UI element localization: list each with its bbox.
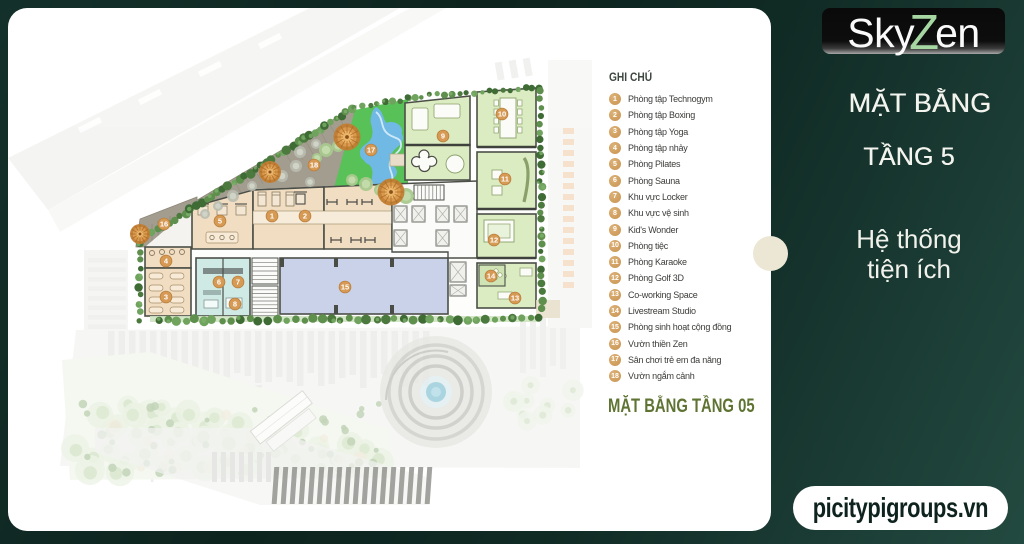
svg-text:17: 17: [367, 146, 375, 155]
svg-text:3: 3: [164, 293, 168, 302]
svg-text:13: 13: [511, 294, 519, 303]
svg-text:10: 10: [498, 110, 506, 119]
svg-text:14: 14: [487, 272, 496, 281]
svg-text:5: 5: [218, 217, 222, 226]
svg-text:8: 8: [233, 300, 237, 309]
svg-text:6: 6: [217, 278, 221, 287]
svg-text:7: 7: [236, 278, 240, 287]
svg-text:12: 12: [490, 236, 498, 245]
svg-text:9: 9: [441, 132, 445, 141]
svg-text:2: 2: [303, 212, 307, 221]
svg-text:1: 1: [270, 212, 274, 221]
svg-text:18: 18: [310, 161, 318, 170]
svg-text:16: 16: [160, 220, 168, 229]
svg-text:15: 15: [341, 283, 349, 292]
svg-text:11: 11: [501, 175, 509, 184]
